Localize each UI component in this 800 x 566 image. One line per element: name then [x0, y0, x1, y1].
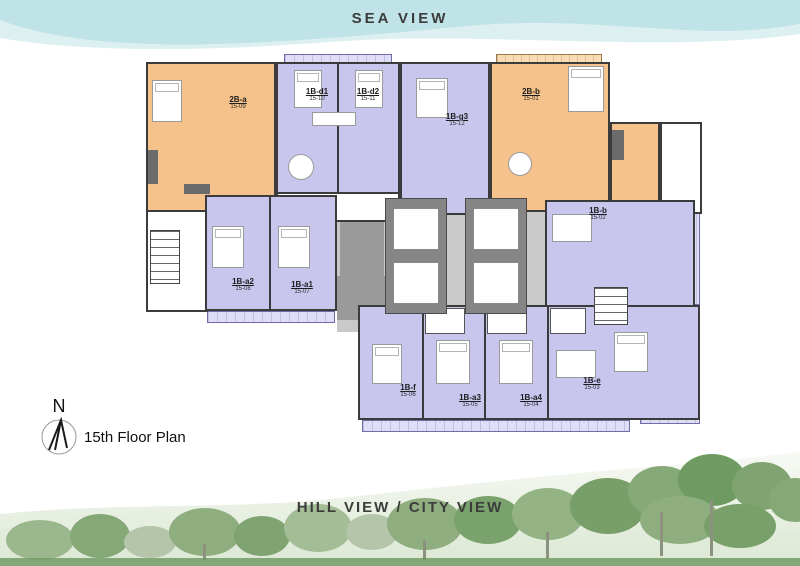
unit-label-1b-a4: 1B-a4 15-04 — [520, 393, 542, 409]
unit-label-1b-b: 1B-b 15-02 — [589, 206, 607, 222]
unit-code: 1B-d2 — [357, 87, 379, 96]
unit-label-1b-d2: 1B-d2 15-11 — [357, 87, 379, 103]
unit-code: 1B-e — [583, 376, 600, 385]
unit-number: 15-04 — [523, 402, 538, 409]
unit-code: 2B-a — [229, 95, 246, 104]
pillow — [281, 229, 307, 238]
balcony-bottom-wing — [362, 420, 630, 432]
stairs-right — [594, 287, 628, 325]
unit-number: 15-07 — [294, 289, 309, 296]
unit-number: 15-06 — [400, 392, 415, 399]
unit-label-1b-e: 1B-e 15-03 — [583, 376, 600, 392]
unit-label-1b-a1: 1B-a1 15-07 — [291, 280, 313, 296]
pillow — [155, 83, 179, 92]
unit-label-1b-g3: 1B-g3 15-12 — [446, 112, 468, 128]
unit-code: 1B-a1 — [291, 280, 313, 289]
unit-number: 15-12 — [449, 121, 464, 128]
pillow — [297, 73, 319, 82]
hill-view-title: HILL VIEW / CITY VIEW — [0, 499, 800, 516]
elevator-car — [473, 208, 519, 250]
pillow — [419, 81, 445, 90]
unit-code: 2B-b — [522, 87, 540, 96]
bed — [499, 340, 533, 384]
unit-code: 1B-a2 — [232, 277, 254, 286]
unit-number: 15-05 — [462, 402, 477, 409]
bed — [614, 332, 648, 372]
unit-divider-wall — [547, 307, 549, 418]
unit-label-1b-d1: 1B-d1 15-10 — [306, 87, 328, 103]
bed — [152, 80, 182, 122]
elevator-car — [393, 262, 439, 304]
bed — [552, 214, 592, 242]
dining-table — [288, 154, 314, 180]
bed — [556, 350, 596, 378]
unit-number: 15-01 — [523, 96, 538, 103]
kitchen-counter — [184, 184, 210, 194]
pillow — [502, 343, 530, 352]
unit-number: 15-10 — [309, 96, 324, 103]
pillow — [215, 229, 241, 238]
unit-code: 1B-b — [589, 206, 607, 215]
unit-label-2b-b: 2B-b 15-01 — [522, 87, 540, 103]
pillow — [358, 73, 380, 82]
unit-divider-wall — [422, 307, 424, 418]
bed — [372, 344, 402, 384]
sofa — [312, 112, 356, 126]
unit-code: 1B-d1 — [306, 87, 328, 96]
unit-code: 1B-g3 — [446, 112, 468, 121]
bed — [568, 66, 604, 112]
bed — [436, 340, 470, 384]
balcony-a-units — [207, 311, 335, 323]
unit-number: 15-03 — [584, 385, 599, 392]
unit-divider-wall — [484, 307, 486, 418]
unit-number: 15-02 — [590, 215, 605, 222]
unit-divider-wall — [269, 197, 271, 309]
unit-label-1b-a3: 1B-a3 15-05 — [459, 393, 481, 409]
bed — [212, 226, 244, 268]
unit-code: 1B-a3 — [459, 393, 481, 402]
unit-label-1b-a2: 1B-a2 15-08 — [232, 277, 254, 293]
pillow — [617, 335, 645, 344]
elevator-car — [393, 208, 439, 250]
unit-label-2b-a: 2B-a 15-09 — [229, 95, 246, 111]
kitchen-counter — [148, 150, 158, 184]
unit-number: 15-08 — [235, 286, 250, 293]
pillow — [571, 69, 601, 78]
bed — [278, 226, 310, 268]
bathroom-block — [550, 308, 586, 334]
unit-code: 1B-f — [400, 383, 416, 392]
elevator-car — [473, 262, 519, 304]
floor-plan-page: SEA VIEW — [0, 0, 800, 566]
bed — [416, 78, 448, 118]
dining-table — [508, 152, 532, 176]
ground-strip — [0, 558, 800, 566]
pillow — [439, 343, 467, 352]
unit-number: 15-11 — [361, 96, 376, 103]
stairs-left — [150, 230, 180, 284]
pillow — [375, 347, 399, 356]
unit-code: 1B-a4 — [520, 393, 542, 402]
unit-label-1b-f: 1B-f 15-06 — [400, 383, 416, 399]
compass-north-letter: N — [53, 396, 66, 416]
unit-number: 15-09 — [230, 104, 245, 111]
sea-view-title: SEA VIEW — [0, 10, 800, 27]
kitchen-counter — [612, 130, 624, 160]
